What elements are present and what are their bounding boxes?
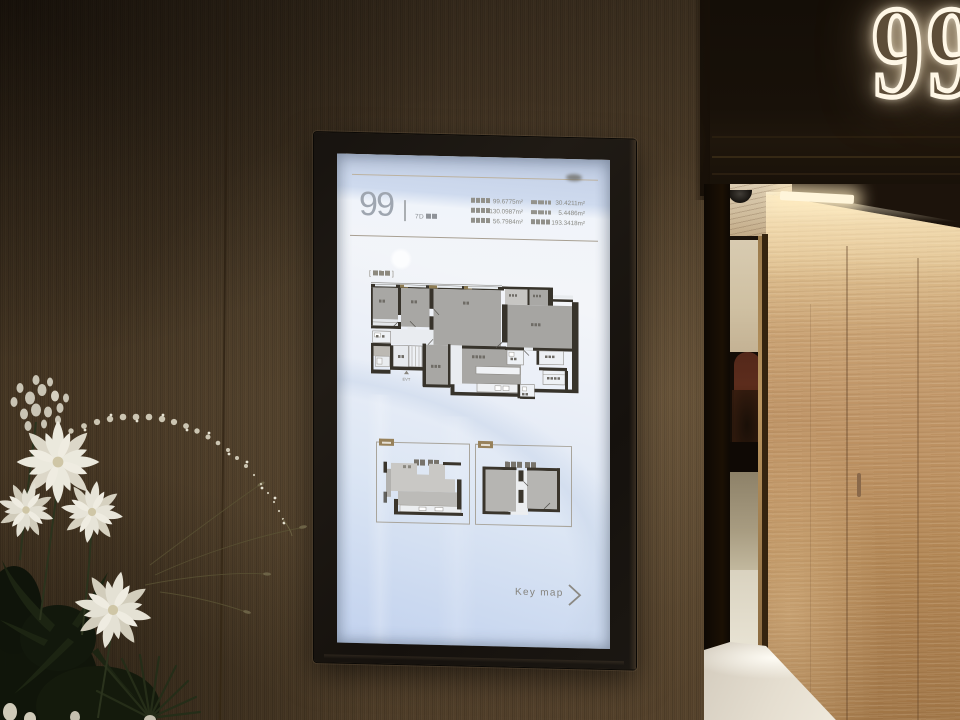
svg-text:EVT: EVT (403, 377, 411, 382)
